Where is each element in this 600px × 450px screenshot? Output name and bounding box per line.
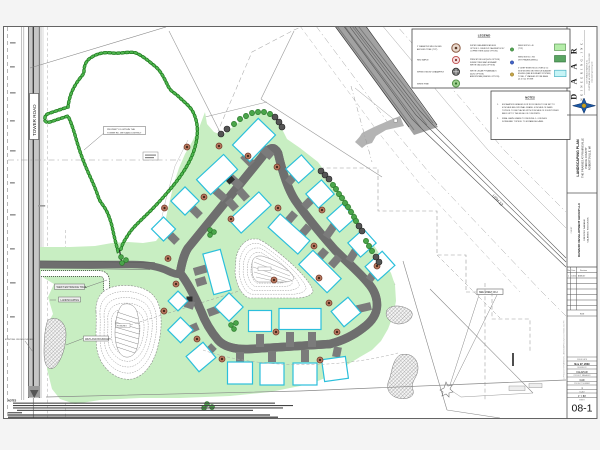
svg-text:GREGORY DAMANIK: GREGORY DAMANIK [583, 219, 586, 241]
svg-text:PROJECT NUMBER: PROJECT NUMBER [574, 383, 590, 385]
svg-text:SEE SHEET 08-2: SEE SHEET 08-2 [479, 291, 498, 294]
svg-text:(2) 4 O.A. STONE: (2) 4 O.A. STONE [518, 78, 534, 81]
svg-text:WHITE CEDAR PYRAMIDALIS: WHITE CEDAR PYRAMIDALIS [470, 70, 497, 73]
svg-text:CALAMINE, WISCONSIN: CALAMINE, WISCONSIN [587, 217, 590, 242]
svg-text:TOWER RD. WETLAND DISTRICT: TOWER RD. WETLAND DISTRICT [107, 131, 142, 134]
svg-text:08-1: 08-1 [571, 403, 592, 415]
svg-text:RUN: RUN [580, 314, 585, 316]
svg-text:NON WOVEN GEOTEXTILE BLANKET: NON WOVEN GEOTEXTILE BLANKET [518, 69, 552, 72]
svg-text:3" DEEP RIVER ROCK OVER 4 OZ: 3" DEEP RIVER ROCK OVER 4 OZ [518, 68, 549, 70]
svg-text:THE PRAIRIES AT PRAIRIEVILLE: THE PRAIRIES AT PRAIRIEVILLE [581, 138, 585, 178]
svg-text:ARBORVITAE (SPACED OPTION): ARBORVITAE (SPACED OPTION) [470, 75, 500, 78]
svg-text:KALAHAR: KALAHAR [576, 371, 587, 374]
svg-text:PROJECT MANAGER: PROJECT MANAGER [574, 374, 592, 377]
svg-text:EXCAVATION GRADED FOR ROCK BED: EXCAVATION GRADED FOR ROCK BEDS TO BE SE… [502, 103, 555, 106]
svg-text:LANDSCAPING: LANDSCAPING [61, 298, 80, 302]
svg-text:No.: No. [568, 270, 571, 272]
svg-text:SCALE: SCALE [579, 390, 585, 393]
svg-text:C:\PROJECTS\PRAIRIE\08-1-LANDS: C:\PROJECTS\PRAIRIE\08-1-LANDSCAPING.DWG… [563, 320, 566, 379]
svg-text:D A A R: D A A R [570, 44, 579, 99]
svg-text:PRINCETON ELM (50/50 OPTION): PRINCETON ELM (50/50 OPTION) [470, 59, 500, 61]
svg-text:AROUND TREE (TYP): AROUND TREE (TYP) [417, 48, 438, 51]
svg-text:PROPERTY IS WITHIN THE: PROPERTY IS WITHIN THE [107, 129, 135, 131]
svg-text:Date: Date [572, 269, 576, 272]
svg-text:6 INCHES BELOW FINAL GRADE. 4: 6 INCHES BELOW FINAL GRADE. 4 INCHES OF … [502, 106, 553, 109]
svg-text:1: 1 [568, 276, 569, 278]
svg-text:ASBUILT: ASBUILT [578, 275, 586, 278]
svg-text:www.daarengineering.com: www.daarengineering.com [592, 61, 594, 83]
svg-text:DAMANIK DEVELOPMENT GROUP LLC: DAMANIK DEVELOPMENT GROUP LLC [577, 202, 581, 257]
svg-text:SEED MIX NO. 40: SEED MIX NO. 40 [518, 45, 534, 47]
svg-text:SUNSET RED MAPLE/SWAMP: SUNSET RED MAPLE/SWAMP [470, 61, 497, 64]
svg-text:FINAL LAWN GRADE TO RECEIVE 4: FINAL LAWN GRADE TO RECEIVE 4 - 6 INCHES [502, 117, 547, 120]
svg-text:ISSUE DATE: ISSUE DATE [577, 358, 588, 361]
svg-text:CAD: CAD [579, 379, 584, 382]
svg-text:DRY PRAIRIE (MESIC): DRY PRAIRIE (MESIC) [518, 58, 538, 61]
svg-text:WETLAND BOUNDARY: WETLAND BOUNDARY [85, 338, 111, 341]
svg-text:POND/BIO: POND/BIO [117, 326, 127, 328]
svg-text:BEDS UP TO THE EDGE OF CONCRET: BEDS UP TO THE EDGE OF CONCRETE. [502, 113, 541, 115]
svg-text:SUPER CAN AMERICAN ELM: SUPER CAN AMERICAN ELM [470, 44, 496, 47]
svg-text:RED MAPLE: RED MAPLE [417, 59, 429, 62]
svg-text:SHEET: SHEET [579, 399, 585, 401]
svg-text:LANDSCAPING PLAN: LANDSCAPING PLAN [576, 139, 580, 177]
svg-text:WHITE OAK (50/50 OPTION): WHITE OAK (50/50 OPTION) [470, 64, 495, 67]
svg-text:(TYP): (TYP) [518, 48, 523, 50]
svg-text:2' DIAMETER MULCH BED: 2' DIAMETER MULCH BED [417, 45, 442, 48]
svg-text:Revision: Revision [580, 270, 587, 272]
svg-text:SPRING SNOW CRABAPPLE: SPRING SNOW CRABAPPLE [417, 71, 445, 74]
svg-text:Nov 27, 2009: Nov 27, 2009 [574, 363, 590, 366]
svg-text:ROBERTSVILLE, WI: ROBERTSVILLE, WI [588, 146, 592, 170]
svg-text:CLIENT: CLIENT [571, 226, 573, 234]
svg-text:1/4/10: 1/4/10 [571, 276, 576, 278]
svg-text:COFFEE TREE (50/50 OPTION): COFFEE TREE (50/50 OPTION) [470, 51, 498, 53]
svg-text:NOTES: NOTES [8, 400, 17, 403]
svg-text:WHITE PINE: WHITE PINE [417, 84, 429, 86]
svg-text:LEGEND: LEGEND [478, 34, 491, 38]
svg-text:EXISTING CROSS CULVERT: EXISTING CROSS CULVERT [5, 339, 35, 341]
svg-text:WEST ENTRANCE TRAIL: WEST ENTRANCE TRAIL [57, 285, 88, 289]
svg-text:SCREENED TOPSOIL TO ESTABLISH: SCREENED TOPSOIL TO ESTABLISH LAWN. [502, 120, 544, 123]
svg-text:SEED MIX NO. 70S: SEED MIX NO. 70S [518, 57, 536, 59]
svg-text:DESIGN BY: DESIGN BY [577, 367, 587, 369]
svg-text:TOPSOIL TO BE PLACED WITH 2 IN: TOPSOIL TO BE PLACED WITH 2 INCHES OF 3 … [502, 109, 559, 112]
svg-text:OPTION 1: OVERCUP OAK/KENTUCKY: OPTION 1: OVERCUP OAK/KENTUCKY [470, 47, 505, 50]
svg-text:TOTAL: 2" WASHED STONE BASE: TOTAL: 2" WASHED STONE BASE [518, 75, 549, 78]
svg-text:(50/50 OPTION): (50/50 OPTION) [470, 73, 484, 75]
svg-text:1" = 80': 1" = 80' [578, 395, 587, 398]
svg-text:PIERCE COUNTY: PIERCE COUNTY [584, 147, 588, 169]
svg-text:EDGING (SEE BOUNDARY SYSTEM): EDGING (SEE BOUNDARY SYSTEM) [518, 72, 551, 75]
svg-text:TOWER ROAD: TOWER ROAD [32, 104, 37, 136]
svg-text:NOTES: NOTES [525, 96, 535, 100]
